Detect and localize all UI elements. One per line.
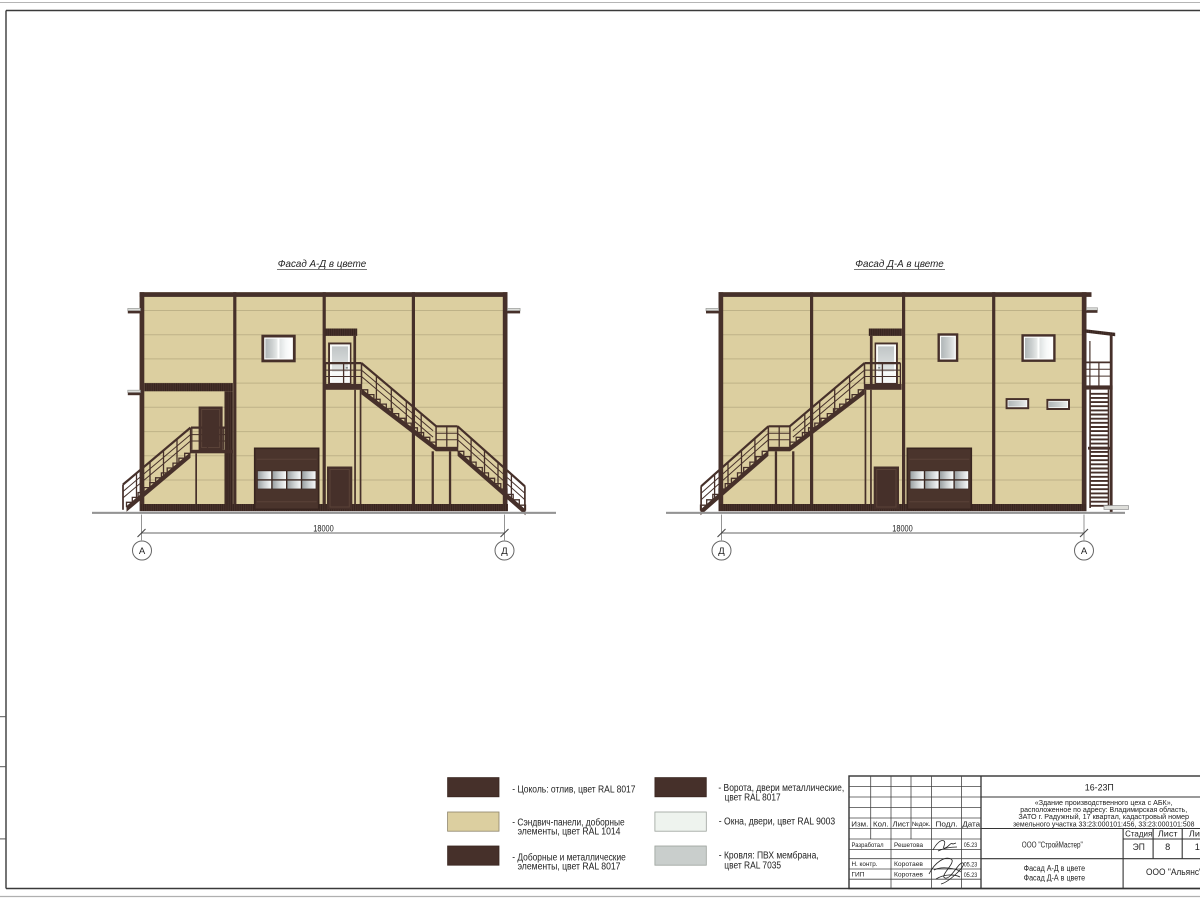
svg-text:элементы, цвет RAL 8017: элементы, цвет RAL 8017	[518, 862, 621, 873]
svg-text:Фасад Д-А в цвете: Фасад Д-А в цвете	[855, 259, 944, 270]
svg-text:А: А	[139, 546, 146, 557]
svg-text:земельного участка 33:23:00010: земельного участка 33:23:000101:456, 33:…	[1013, 821, 1195, 828]
svg-text:Д: Д	[718, 546, 725, 557]
svg-text:№док.: №док.	[912, 821, 931, 828]
svg-text:Фасад Д-А в цвете: Фасад Д-А в цвете	[1024, 874, 1086, 883]
svg-text:Решетова: Решетова	[894, 842, 923, 849]
svg-text:Коротаев: Коротаев	[894, 872, 923, 879]
svg-text:05.23: 05.23	[964, 842, 978, 849]
svg-text:ЭП: ЭП	[1133, 842, 1145, 852]
svg-text:ООО "Альянс": ООО "Альянс"	[1146, 867, 1200, 878]
svg-text:элементы, цвет RAL 1014: элементы, цвет RAL 1014	[518, 827, 621, 838]
svg-text:Лист: Лист	[893, 819, 911, 828]
svg-text:Стадия: Стадия	[1125, 828, 1152, 838]
svg-text:Н. контр.: Н. контр.	[852, 861, 878, 868]
svg-text:ООО "СтройМастер": ООО "СтройМастер"	[1022, 840, 1083, 849]
svg-text:«Здание производственного цеха: «Здание производственного цеха с АБК»,	[1035, 800, 1173, 807]
svg-text:Фасад А-Д в цвете: Фасад А-Д в цвете	[278, 259, 367, 270]
svg-text:Фасад А-Д в цвете: Фасад А-Д в цвете	[1024, 864, 1086, 873]
svg-text:ЗАТО г. Радужный, 17 квартал,: ЗАТО г. Радужный, 17 квартал, кадастровы…	[1018, 813, 1189, 821]
svg-text:Изм.: Изм.	[851, 819, 868, 828]
svg-text:05.23: 05.23	[964, 872, 978, 879]
svg-text:А: А	[1081, 546, 1088, 557]
svg-text:ГИП: ГИП	[852, 872, 865, 879]
svg-text:16-23П: 16-23П	[1085, 783, 1114, 794]
svg-text:Лист: Лист	[1189, 828, 1200, 838]
svg-text:18000: 18000	[892, 523, 913, 533]
svg-text:Д: Д	[501, 546, 508, 557]
svg-text:цвет RAL 8017: цвет RAL 8017	[725, 792, 781, 803]
svg-text:Кол.: Кол.	[873, 819, 889, 828]
svg-text:Лист: Лист	[1158, 828, 1178, 838]
svg-text:Разработал: Разработал	[852, 841, 884, 849]
svg-text:8: 8	[1165, 842, 1170, 852]
svg-text:- Окна, двери, цвет RAL 9003: - Окна, двери, цвет RAL 9003	[719, 817, 835, 828]
svg-text:Коротаев: Коротаев	[894, 861, 923, 868]
svg-text:18000: 18000	[313, 523, 334, 533]
svg-text:Подл.: Подл.	[936, 819, 958, 828]
svg-text:цвет RAL 7035: цвет RAL 7035	[724, 860, 781, 871]
svg-text:05.23: 05.23	[964, 862, 978, 869]
svg-text:расположенное по адресу: Влади: расположенное по адресу: Владимирская об…	[1020, 806, 1187, 814]
svg-text:Дата: Дата	[962, 819, 981, 828]
svg-text:- Цоколь: отлив, цвет RAL 8017: - Цоколь: отлив, цвет RAL 8017	[512, 784, 635, 795]
svg-text:1: 1	[1195, 842, 1200, 852]
